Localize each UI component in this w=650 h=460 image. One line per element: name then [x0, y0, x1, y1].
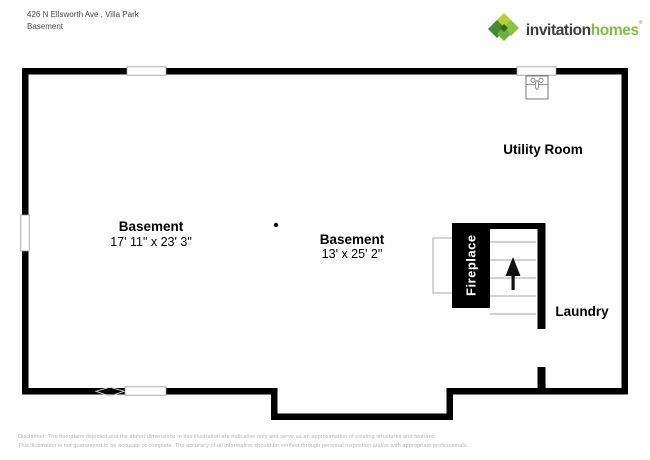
window-left [21, 215, 29, 251]
room-label-laundry: Laundry [555, 304, 608, 319]
fireplace-label: Fireplace [452, 223, 490, 308]
room-label-utility: Utility Room [503, 142, 583, 157]
room-label-basement-2: Basement [320, 232, 385, 247]
window-top-right [517, 67, 556, 75]
window-top-left [127, 67, 166, 75]
stairs-up-arrow-icon [506, 257, 521, 290]
disclaimer-line-1: Disclaimer: The floorplans depicted and … [18, 434, 437, 440]
room-dims-basement-2: 13' x 25' 2" [322, 247, 383, 261]
stair-laundry-wall [538, 223, 546, 329]
room-label-basement-1: Basement [119, 219, 184, 234]
utility-sink-icon [526, 76, 548, 99]
floorplan-page: 426 N Ellsworth Ave , Villa Park Basemen… [0, 0, 650, 460]
support-column-dot [274, 223, 278, 227]
staircase [490, 223, 546, 395]
disclaimer-line-2: This illustration is not guaranteed to b… [18, 443, 468, 449]
room-dims-basement-1: 17' 11" x 23' 3" [110, 235, 192, 249]
floorplan-drawing [0, 0, 650, 460]
window-bottom-left [125, 387, 166, 395]
laundry-wall-stub [538, 367, 546, 395]
